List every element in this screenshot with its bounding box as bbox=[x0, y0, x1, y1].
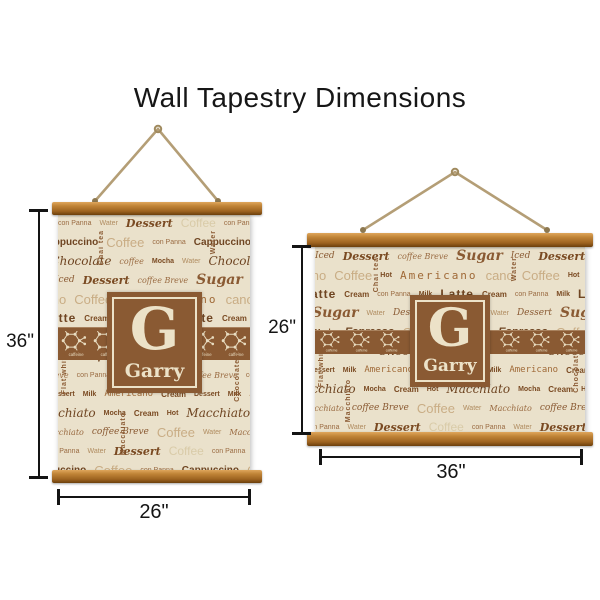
wooden-bar-bottom bbox=[307, 432, 593, 446]
pattern-word: Cream bbox=[548, 380, 573, 399]
caffeine-molecule-icon: caffeine bbox=[379, 332, 401, 352]
pattern-word: Americano bbox=[509, 361, 558, 380]
hanging-rope bbox=[350, 164, 560, 239]
pattern-word: Hot bbox=[167, 404, 179, 423]
height-measure-cap-bottom bbox=[29, 476, 48, 479]
hanging-rope bbox=[80, 120, 235, 210]
svg-text:caffeine: caffeine bbox=[386, 349, 398, 353]
pattern-word: con Panna bbox=[377, 285, 410, 304]
vertical-pattern-word: Water bbox=[511, 257, 518, 281]
pattern-word: con Panna bbox=[212, 442, 245, 461]
vertical-pattern-word: Chai tea bbox=[373, 257, 380, 292]
pattern-row: WaterMacchiatocoffee BreveCoffeeWaterMac… bbox=[58, 423, 250, 442]
height-measure-line bbox=[38, 210, 40, 478]
pattern-word: Water bbox=[491, 304, 509, 323]
pattern-row: MacchiatoMochaCreamHotMacchiatoMochaCrea… bbox=[58, 404, 250, 423]
width-measure-line bbox=[58, 496, 250, 498]
pattern-word: Coffee bbox=[157, 423, 195, 442]
width-measure-cap-right bbox=[580, 449, 583, 465]
pattern-row: IcedDessertcoffee BreveSugarIcedDessertc… bbox=[58, 271, 250, 290]
vertical-pattern-word: Chai tea bbox=[98, 230, 105, 265]
pattern-word: coffee Breve bbox=[138, 271, 189, 290]
pattern-word: coffee Breve bbox=[540, 399, 585, 418]
pattern-word: Water bbox=[87, 442, 105, 461]
pattern-word: Coffee bbox=[106, 233, 144, 252]
vertical-pattern-word: Chocolates bbox=[573, 345, 580, 393]
pattern-word: Dessert bbox=[517, 304, 552, 323]
pattern-word: cano bbox=[226, 290, 250, 309]
page-title: Wall Tapestry Dimensions bbox=[0, 82, 600, 114]
pattern-word: Cappuccino bbox=[194, 233, 250, 252]
pattern-word: Cream bbox=[344, 285, 369, 304]
pattern-word: Milk bbox=[343, 361, 357, 380]
vertical-pattern-word: Water bbox=[210, 230, 217, 254]
pattern-word: Dessert bbox=[343, 247, 390, 266]
pattern-word: cano bbox=[315, 266, 326, 285]
pattern-word: Hot bbox=[380, 266, 392, 285]
caffeine-molecule-icon: caffeine bbox=[349, 332, 371, 352]
tapestry-fabric: con PannaWaterDessertCoffeecon PannaWate… bbox=[58, 214, 250, 471]
tapestry-fabric: IcedDessertcoffee BreveSugarIcedDessertc… bbox=[315, 247, 585, 434]
pattern-word: Latte bbox=[58, 309, 76, 328]
pattern-word: Americano bbox=[249, 385, 250, 404]
width-dimension-label: 26" bbox=[134, 501, 174, 524]
pattern-word: Chocolate bbox=[208, 252, 250, 271]
pattern-row: WaterChocolatecoffeeMochaWaterChocolatec… bbox=[58, 252, 250, 271]
pattern-word: Macchiato bbox=[229, 423, 250, 442]
pattern-word: Water bbox=[463, 399, 481, 418]
height-measure-cap-bottom bbox=[292, 432, 311, 435]
pattern-word: Americano bbox=[364, 361, 413, 380]
pattern-word: Coffee bbox=[334, 266, 372, 285]
pattern-word: Water bbox=[203, 423, 221, 442]
wooden-bar-top bbox=[307, 233, 593, 247]
wooden-bar-bottom bbox=[52, 470, 262, 483]
vertical-pattern-word: Flat white bbox=[318, 345, 325, 387]
pattern-word: Sugar bbox=[456, 247, 503, 266]
pattern-word: cano bbox=[58, 290, 66, 309]
monogram-panel: G Garry bbox=[107, 292, 202, 393]
pattern-word: Cream bbox=[222, 309, 247, 328]
height-dimension-label: 36" bbox=[4, 331, 34, 353]
pattern-word: con Panna bbox=[224, 214, 250, 233]
monogram-initial: G bbox=[130, 300, 180, 358]
pattern-word: Sugar bbox=[196, 271, 243, 290]
pattern-word: coffee Breve bbox=[398, 247, 449, 266]
pattern-word: Dessert bbox=[83, 271, 130, 290]
pattern-word: Macchiato bbox=[186, 404, 250, 423]
pattern-word: con Panna bbox=[58, 442, 79, 461]
pattern-word: Macchiato bbox=[489, 399, 531, 418]
pattern-word: Hot bbox=[581, 380, 585, 399]
pattern-word: coffee Breve bbox=[352, 399, 409, 418]
pattern-word: Water bbox=[367, 304, 385, 323]
pattern-word: Iced bbox=[58, 271, 75, 290]
pattern-word: con Panna bbox=[152, 233, 185, 252]
svg-text:caffeine: caffeine bbox=[356, 349, 368, 353]
pattern-word: con Panna bbox=[515, 285, 548, 304]
height-measure-cap-top bbox=[292, 245, 311, 248]
svg-text:caffeine: caffeine bbox=[326, 349, 338, 353]
caffeine-molecule-icon: caffeine bbox=[499, 332, 521, 352]
caffeine-molecule-icon: caffeine bbox=[529, 332, 551, 352]
monogram-panel: G Garry bbox=[410, 295, 490, 387]
pattern-word: Coffee bbox=[169, 442, 204, 461]
pattern-word: Macchiato bbox=[58, 423, 84, 442]
pattern-row: con PannaWaterDessertCoffeecon PannaWate… bbox=[58, 442, 250, 461]
pattern-row: WaterMacchiatocoffee BreveCoffeeWaterMac… bbox=[315, 399, 585, 418]
pattern-word: Mocha bbox=[518, 380, 540, 399]
pattern-word: Cream bbox=[134, 404, 159, 423]
pattern-word: Dessert bbox=[538, 247, 585, 266]
pattern-word: Coffee bbox=[417, 399, 455, 418]
pattern-word: Latte bbox=[578, 285, 585, 304]
pattern-word: con Panna bbox=[246, 366, 250, 385]
pattern-word: Latte bbox=[315, 285, 336, 304]
pattern-word: Coffee bbox=[522, 266, 560, 285]
pattern-word: Cappuccino bbox=[58, 233, 98, 252]
pattern-word: Cream bbox=[84, 309, 109, 328]
height-measure-line bbox=[301, 246, 303, 434]
vertical-pattern-word: Flat white bbox=[61, 352, 68, 394]
pattern-word: cano bbox=[486, 266, 514, 285]
pattern-word: con Panna bbox=[77, 366, 110, 385]
vertical-pattern-word: Macchiato bbox=[345, 379, 352, 422]
wall-tapestry-dimensions-graphic: Wall Tapestry Dimensions con PannaWaterD… bbox=[0, 0, 600, 600]
pattern-word: Americano bbox=[400, 266, 478, 285]
width-measure-cap-left bbox=[57, 489, 60, 505]
pattern-row: IcedDessertcoffee BreveSugarIcedDessertc… bbox=[315, 247, 585, 266]
monogram-name: Garry bbox=[423, 358, 476, 375]
pattern-word: Sugar bbox=[315, 304, 359, 323]
pattern-word: Hot bbox=[568, 266, 580, 285]
vertical-pattern-word: Chocolates bbox=[234, 354, 241, 402]
svg-text:caffeine: caffeine bbox=[506, 349, 518, 353]
pattern-word: Mocha bbox=[152, 252, 174, 271]
pattern-word: Macchiato bbox=[58, 404, 96, 423]
height-measure-cap-top bbox=[29, 209, 48, 212]
width-measure-cap-right bbox=[248, 489, 251, 505]
pattern-word: Water bbox=[182, 252, 200, 271]
width-measure-cap-left bbox=[319, 449, 322, 465]
wooden-bar-top bbox=[52, 202, 262, 215]
pattern-word: Iced bbox=[315, 247, 335, 266]
pattern-word: Macchiato bbox=[315, 399, 344, 418]
width-dimension-label: 36" bbox=[431, 461, 471, 484]
pattern-word: con Panna bbox=[58, 214, 91, 233]
pattern-word: Mocha bbox=[364, 380, 386, 399]
vertical-pattern-word: Macchiato bbox=[120, 412, 127, 455]
monogram-name: Garry bbox=[125, 362, 185, 381]
pattern-row: con PannaWaterDessertCoffeecon PannaWate… bbox=[58, 214, 250, 233]
pattern-word: coffee bbox=[119, 252, 143, 271]
pattern-row: canoCoffeeHotAmericanocanoCoffeeHotAmeri… bbox=[315, 266, 585, 285]
pattern-word: Dessert bbox=[126, 214, 173, 233]
pattern-word: Sugar bbox=[560, 304, 585, 323]
width-measure-line bbox=[320, 456, 582, 458]
height-dimension-label: 26" bbox=[258, 317, 296, 339]
svg-text:caffeine: caffeine bbox=[536, 349, 548, 353]
monogram-initial: G bbox=[428, 303, 472, 355]
pattern-word: Milk bbox=[556, 285, 570, 304]
svg-text:caffeine: caffeine bbox=[69, 352, 85, 357]
pattern-row: CappuccinoCoffeecon PannaCappuccinoCoffe… bbox=[58, 233, 250, 252]
pattern-word: Milk bbox=[83, 385, 97, 404]
